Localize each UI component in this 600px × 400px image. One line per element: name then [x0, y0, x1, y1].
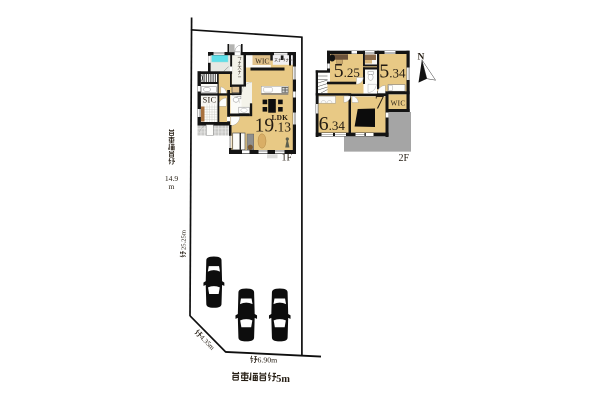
svg-text:6.90m: 6.90m: [258, 355, 278, 364]
svg-text:5m: 5m: [276, 374, 290, 385]
svg-text:1F: 1F: [282, 153, 293, 164]
svg-text:SIC: SIC: [203, 96, 217, 105]
svg-text:N: N: [418, 52, 425, 62]
svg-text:m: m: [169, 182, 175, 191]
svg-text:7: 7: [375, 92, 385, 114]
svg-text:WIC: WIC: [391, 100, 406, 108]
svg-text:WIC: WIC: [255, 57, 269, 65]
svg-text:2F: 2F: [399, 153, 410, 164]
svg-text:19.13: 19.13: [255, 116, 292, 137]
svg-text:25.25m: 25.25m: [180, 229, 187, 250]
